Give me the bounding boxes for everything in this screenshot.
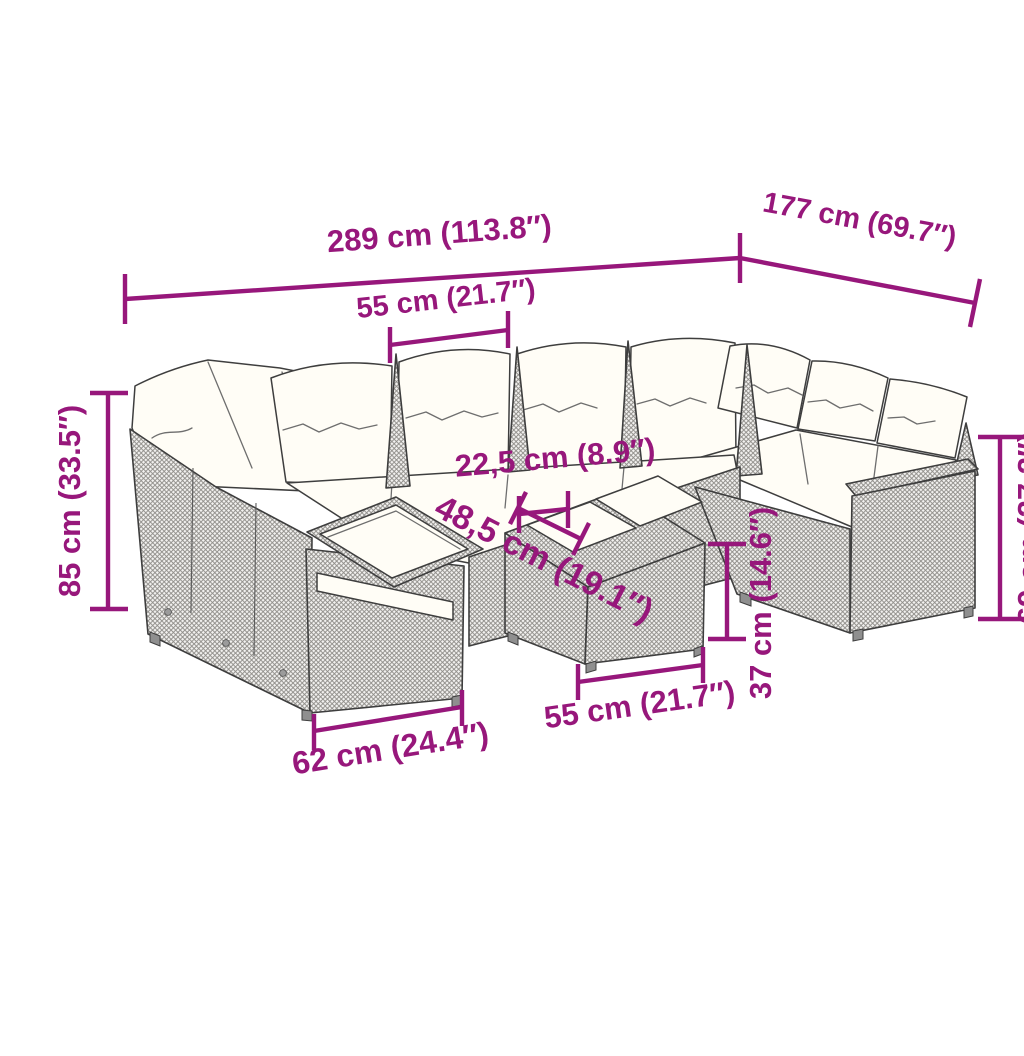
dim-label-overall-depth: 177 cm (69.7″) (760, 187, 959, 254)
dim-label-armrest-height: 69 cm (27.2″) (1011, 432, 1024, 624)
dimension-line (390, 330, 508, 345)
dim-overall-depth: 177 cm (69.7″) (740, 187, 980, 327)
back-cushion (271, 363, 392, 486)
dim-label-end-section-width: 62 cm (24.4″) (289, 715, 491, 782)
back-cushion (877, 379, 967, 458)
dimension-diagram: 289 cm (113.8″) 177 cm (69.7″) 55 cm (21… (40, 16, 1024, 1040)
dim-table-width: 55 cm (21.7″) (542, 647, 737, 735)
dim-label-table-width: 55 cm (21.7″) (542, 674, 737, 735)
dim-label-overall-width: 289 cm (113.8″) (326, 208, 553, 259)
dimension-line (740, 258, 975, 303)
right-armrest-side (850, 471, 975, 633)
dim-label-table-height: 37 cm (14.6″) (743, 507, 778, 699)
diagram-canvas: 289 cm (113.8″) 177 cm (69.7″) 55 cm (21… (40, 16, 1024, 1040)
dim-label-overall-height: 85 cm (33.5″) (52, 405, 87, 597)
dim-overall-height: 85 cm (33.5″) (52, 393, 128, 609)
dimension-line (578, 665, 703, 682)
dim-seat-width: 55 cm (21.7″) (355, 273, 537, 363)
dim-armrest-height: 69 cm (27.2″) (978, 432, 1024, 624)
